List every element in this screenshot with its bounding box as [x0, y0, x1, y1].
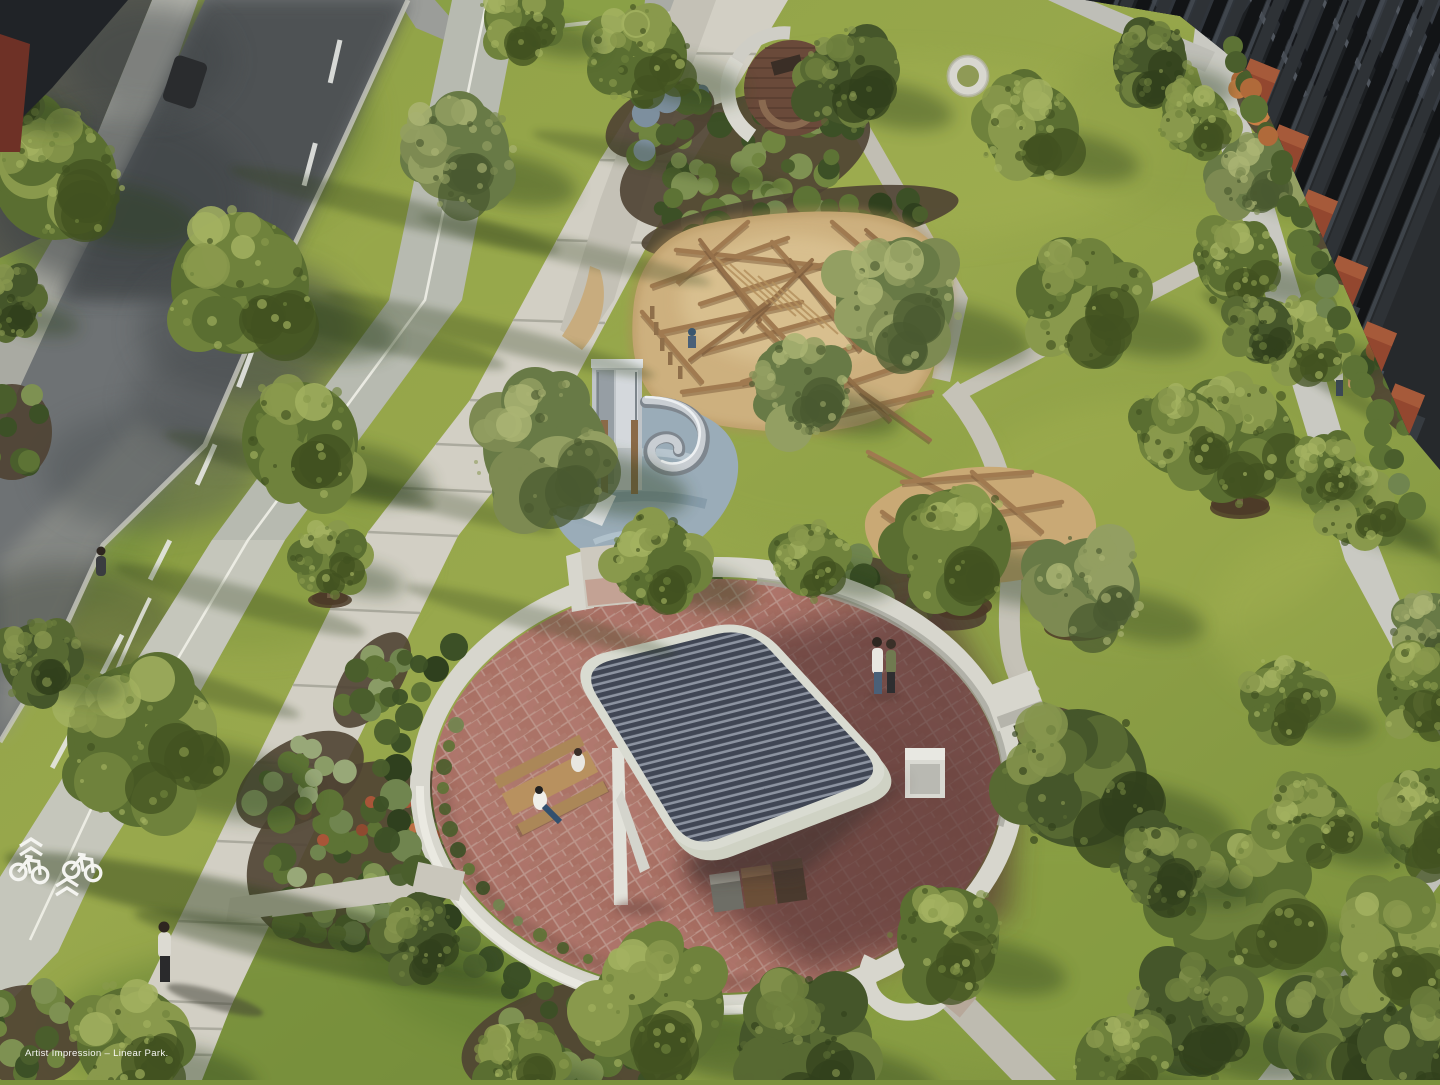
svg-text:Artist Impression – Linear Par: Artist Impression – Linear Park.: [25, 1048, 168, 1059]
